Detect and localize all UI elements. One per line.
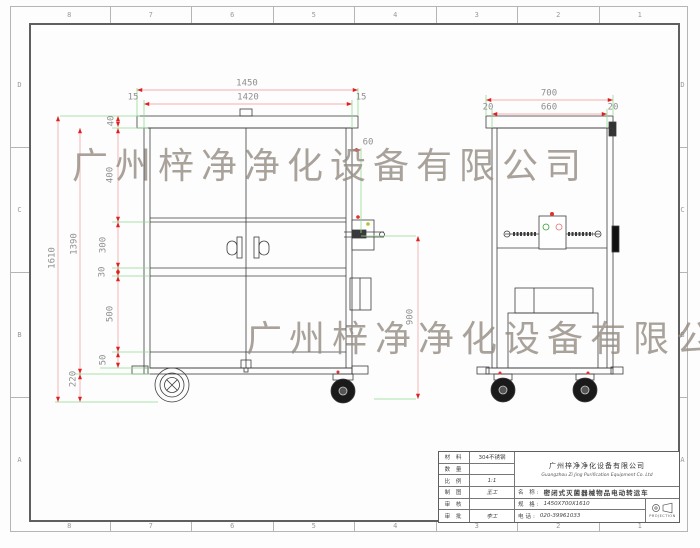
tb-projection-label: PROJECTION bbox=[649, 514, 676, 518]
dim-front-mid: 300 bbox=[100, 237, 109, 253]
tb-phone-value: 020-39961033 bbox=[540, 513, 580, 519]
dim-side-overall-width: 700 bbox=[541, 90, 557, 99]
tb-projection-cell: PROJECTION bbox=[646, 499, 679, 522]
tb-label-material: 材 料 bbox=[439, 452, 470, 464]
socket-box bbox=[350, 278, 371, 310]
tb-phone-label: 电话: bbox=[518, 512, 537, 520]
tb-company-en: Guangzhou Zi Jing Purification Equipment… bbox=[541, 473, 652, 478]
dim-front-lower: 500 bbox=[107, 306, 116, 322]
dim-front-rail: 30 bbox=[99, 267, 108, 278]
tb-company-cn: 广州梓净净化设备有限公司 bbox=[549, 461, 645, 471]
control-box-side bbox=[539, 212, 566, 249]
drawing-sheet: 8 7 6 5 4 3 2 1 8 7 6 5 4 3 2 1 D C B A … bbox=[0, 0, 700, 548]
tb-value-quantity bbox=[470, 464, 515, 476]
tb-product-name-cell: 名 称: 密闭式灭菌器械物品电动转运车 bbox=[515, 487, 679, 499]
tb-name-value: 密闭式灭菌器械物品电动转运车 bbox=[544, 487, 649, 497]
dim-front-body-height: 1390 bbox=[71, 233, 80, 255]
tb-label-approved-by: 审 批 bbox=[439, 510, 470, 522]
front-view bbox=[132, 109, 385, 403]
side-hinge-bar bbox=[612, 226, 619, 252]
dim-side-inset-right: 20 bbox=[608, 104, 619, 113]
tb-label-checked-by: 审 核 bbox=[439, 499, 470, 511]
tb-value-drawn-by: 王工 bbox=[470, 487, 515, 499]
tb-value-approved-by: 李工 bbox=[470, 510, 515, 522]
dimension-lines bbox=[58, 90, 613, 402]
tb-label-drawn-by: 制 图 bbox=[439, 487, 470, 499]
dim-front-lid: 40 bbox=[108, 116, 117, 127]
extension-lines bbox=[55, 88, 613, 402]
tb-company-cell: 广州梓净净化设备有限公司 Guangzhou Zi Jing Purificat… bbox=[515, 452, 679, 487]
title-block: 材 料 304不锈钢 广州梓净净化设备有限公司 Guangzhou Zi Jin… bbox=[438, 451, 680, 523]
dim-front-upper: 400 bbox=[107, 167, 116, 183]
tb-spec-label: 规 格: bbox=[518, 500, 541, 508]
fixed-wheel bbox=[155, 368, 189, 402]
dim-side-inset-left: 20 bbox=[483, 104, 494, 113]
dim-front-inset-right: 15 bbox=[356, 94, 367, 103]
door-handles bbox=[227, 237, 269, 258]
dim-front-inset-left: 15 bbox=[128, 94, 139, 103]
side-view bbox=[477, 116, 623, 402]
dim-front-box-offset: 60 bbox=[363, 139, 374, 148]
caster-wheel-side-left bbox=[491, 372, 515, 403]
tb-value-checked-by bbox=[470, 499, 515, 511]
dim-front-ground-clearance: 220 bbox=[70, 371, 79, 387]
dim-front-total-height: 1610 bbox=[49, 247, 58, 269]
caster-wheel-front bbox=[331, 371, 355, 404]
control-box-front bbox=[344, 215, 385, 250]
projection-symbol-icon bbox=[649, 502, 677, 514]
tb-phone-cell: 电话: 020-39961033 bbox=[515, 510, 646, 522]
dim-front-overall-width: 1450 bbox=[236, 80, 258, 89]
dim-side-inner-width: 660 bbox=[541, 104, 557, 113]
dim-front-base: 50 bbox=[100, 355, 109, 366]
tb-value-scale: 1:1 bbox=[470, 475, 515, 487]
dim-front-inner-width: 1420 bbox=[237, 94, 259, 103]
dim-front-handle-height: 900 bbox=[407, 309, 416, 325]
tb-label-scale: 比 例 bbox=[439, 475, 470, 487]
tb-name-label: 名 称: bbox=[518, 488, 541, 496]
tb-label-quantity: 数 量 bbox=[439, 464, 470, 476]
tb-value-material: 304不锈钢 bbox=[470, 452, 515, 464]
tb-spec-cell: 规 格: 1450X700X1610 bbox=[515, 499, 646, 511]
caster-wheel-side-right bbox=[573, 372, 597, 403]
tb-spec-value: 1450X700X1610 bbox=[544, 501, 590, 507]
